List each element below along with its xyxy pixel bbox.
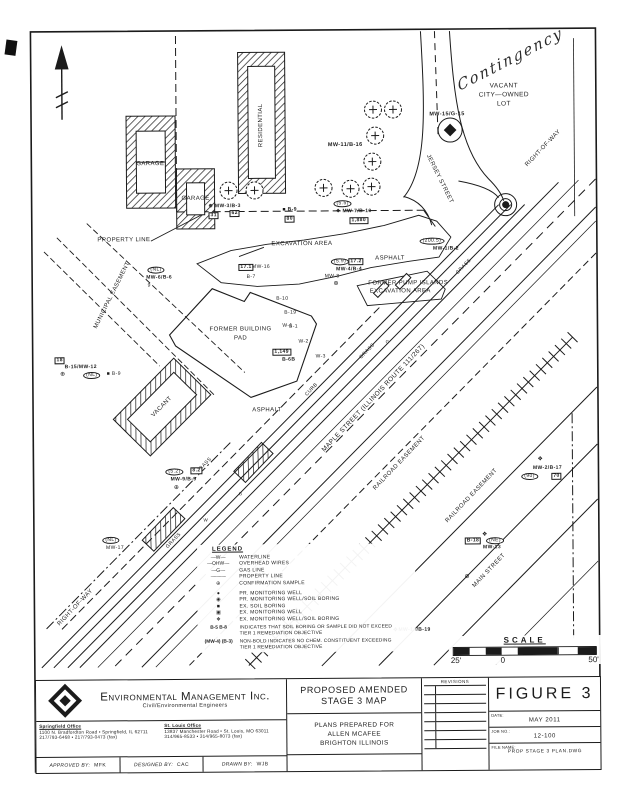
scale-bar-block: SCALE 25' 0 50': [449, 635, 601, 665]
drawn-by-value: WJB: [257, 761, 269, 767]
legend-row: (MW-4) (B-3)NON-BOLD INDICATES NO CHEM. …: [201, 639, 413, 652]
tree-icon: [220, 182, 237, 199]
file-row: FILE NAME: PROP STAGE 3 PLAN.DWG: [489, 743, 600, 770]
prepared-for: PLANS PREPARED FOR ALLEN MCAFEE BRIGHTON…: [287, 713, 421, 755]
title-block: Environmental Management Inc. Civil/Envi…: [35, 676, 602, 774]
revisions-block: REVISIONS: [422, 678, 490, 770]
legend-symbol-items: ●PR. MONITORING WELL◉PR. MONITORING WELL…: [200, 589, 412, 623]
sheet-tilt-wrapper: VACANTCITY—OWNEDLOTRIGHT-OF-WAYJERSEY ST…: [0, 0, 629, 800]
legend-label: NON-BOLD INDICATES NO CHEM. CONSTITUENT …: [240, 639, 400, 651]
north-arrow-icon: [56, 48, 69, 120]
file-value: PROP STAGE 3 PLAN.DWG: [489, 749, 600, 755]
date-label: DATE:: [491, 713, 504, 718]
job-row: JOB NO.: 12-100: [489, 727, 600, 744]
approved-by-value: MFK: [94, 762, 106, 768]
revisions-row: [424, 731, 486, 740]
scale-segment: [454, 648, 470, 655]
revisions-row: [424, 713, 486, 722]
legend-notes: B-5 B-8INDICATES THAT SOIL BORING OR SAM…: [201, 624, 413, 651]
springfield-phone: 217/793-6468 • 217/793-0473 (fax): [39, 734, 158, 740]
date-value: MAY 2011: [489, 717, 600, 724]
stlouis-phone: 314/965-8533 • 314/965-8073 (fax): [164, 733, 283, 739]
municipal-easement-lines: [44, 222, 245, 396]
legend-row: ❖EX. MONITORING WELL/SOIL BORING: [201, 615, 413, 623]
well-symbols: [438, 118, 517, 217]
figure-block: FIGURE 3 DATE: MAY 2011 JOB NO.: 12-100 …: [489, 677, 601, 770]
revisions-row: [424, 704, 486, 713]
legend-symbol: ❖: [201, 616, 237, 623]
scale-segment: [502, 648, 518, 655]
revisions-row: [424, 722, 486, 731]
revisions-header: REVISIONS: [422, 679, 488, 684]
legend-label: EX. MONITORING WELL/SOIL BORING: [240, 615, 340, 622]
springfield-office: Springfield Office 1100 N. Bradfordton R…: [39, 723, 158, 755]
legend-label: CONFIRMATION SAMPLE: [239, 580, 305, 587]
drawn-by-cell: DRAWN BY: WJB: [204, 756, 287, 772]
scale-zero-label: 0: [501, 656, 506, 665]
stlouis-office: St. Louis Office 13837 Manchester Road •…: [164, 722, 283, 754]
legend-symbol: B-5 B-8: [201, 626, 237, 637]
tree-icon: [315, 179, 332, 196]
scale-segment: [578, 647, 597, 654]
approved-by-label: APPROVED BY:: [49, 762, 90, 768]
company-header: Environmental Management Inc. Civil/Envi…: [36, 679, 286, 721]
legend-title: LEGEND: [212, 545, 412, 552]
drawn-by-label: DRAWN BY:: [222, 761, 253, 767]
project-title: PROPOSED AMENDED STAGE 3 MAP: [287, 678, 421, 714]
company-logo-icon: [48, 684, 82, 718]
scale-right-label: 50': [588, 655, 599, 664]
scale-title: SCALE: [449, 635, 601, 645]
scan-artifact: [5, 40, 18, 56]
job-value: 12-100: [489, 733, 600, 740]
scale-segment: [518, 647, 558, 654]
pump-islands: [373, 273, 411, 297]
revisions-row: [424, 695, 486, 704]
company-block: Environmental Management Inc. Civil/Envi…: [36, 679, 288, 773]
tree-icon: [342, 180, 359, 197]
legend-row: B-5 B-8INDICATES THAT SOIL BORING OR SAM…: [201, 624, 413, 637]
scale-left-label: 25': [451, 656, 462, 665]
tree-icon: [364, 153, 381, 170]
date-row: DATE: MAY 2011: [489, 711, 600, 728]
designed-by-cell: DESIGNED BY: CAC: [120, 757, 204, 773]
approved-by-cell: APPROVED BY: MFK: [36, 757, 120, 773]
job-label: JOB NO.:: [491, 729, 510, 734]
revisions-table: [424, 685, 486, 749]
project-title-line2: STAGE 3 MAP: [287, 695, 421, 707]
tree-icon: [384, 101, 401, 118]
revisions-row: [424, 740, 486, 749]
prepared-for-line3: BRIGHTON ILLINOIS: [287, 738, 421, 748]
revisions-row: [424, 686, 486, 695]
scale-segment: [470, 648, 486, 655]
scale-segment: [558, 647, 578, 654]
tree-icon: [363, 178, 380, 195]
file-label: FILE NAME:: [491, 745, 515, 750]
approvals-row: APPROVED BY: MFK DESIGNED BY: CAC DRAWN …: [36, 755, 286, 773]
legend-label: INDICATES THAT SOIL BORING OR SAMPLE DID…: [240, 624, 400, 636]
company-offices: Springfield Office 1100 N. Bradfordton R…: [36, 719, 286, 757]
designed-by-label: DESIGNED BY:: [134, 761, 173, 767]
legend-symbol: ⊕: [200, 580, 236, 587]
scale-segment: [486, 648, 502, 655]
legend-row: ⊕CONFIRMATION SAMPLE: [200, 579, 412, 587]
company-name: Environmental Management Inc.: [88, 690, 282, 703]
figure-number: FIGURE 3: [489, 677, 600, 712]
tree-icon: [367, 127, 384, 144]
tree-icon: [246, 182, 263, 199]
designed-by-value: CAC: [177, 761, 189, 767]
project-block: PROPOSED AMENDED STAGE 3 MAP PLANS PREPA…: [287, 678, 423, 771]
tree-icon: [364, 101, 381, 118]
legend: LEGEND —W—WATERLINE—OHW—OVERHEAD WIRES—G…: [197, 543, 416, 653]
scanned-site-plan-sheet: VACANTCITY—OWNEDLOTRIGHT-OF-WAYJERSEY ST…: [0, 0, 629, 800]
legend-line-items: —W—WATERLINE—OHW—OVERHEAD WIRES—G—GAS LI…: [200, 553, 412, 587]
legend-symbol: (MW-4) (B-3): [201, 640, 237, 651]
